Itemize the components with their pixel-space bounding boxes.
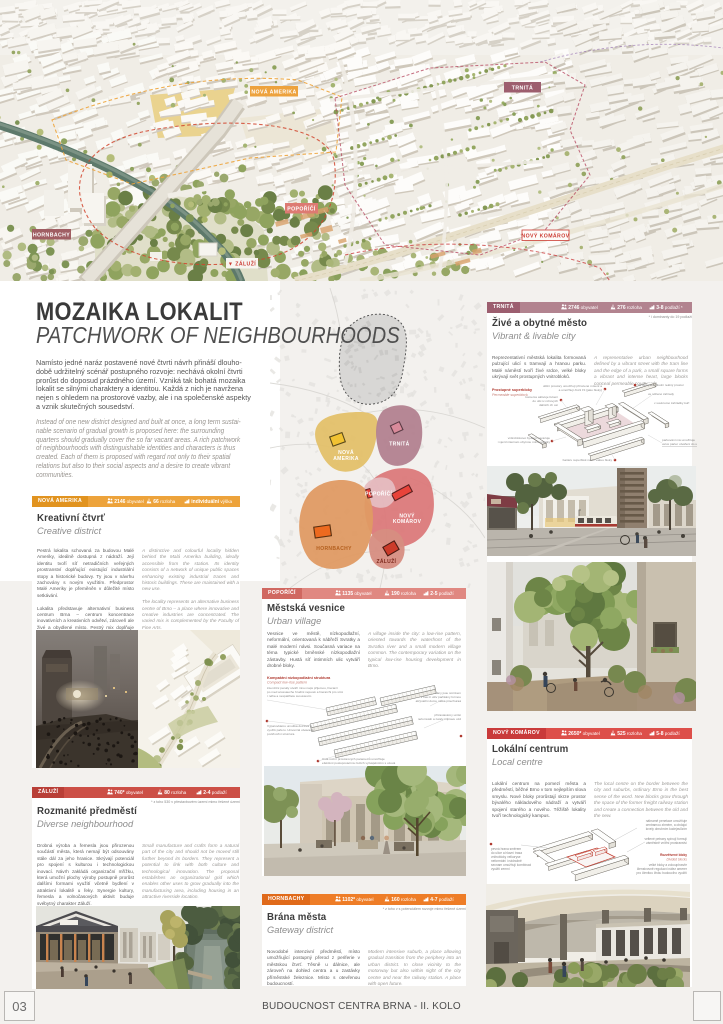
svg-text:záměstně vnitřní prostranství: záměstně vnitřní prostranství (646, 841, 687, 845)
svg-text:pozičvožní struizura: pozičvožní struizura (267, 732, 295, 736)
svg-text:TRNITÁ: TRNITÁ (389, 440, 409, 447)
svg-text:efektivní postupovácímu řečích: efektivní postupovácímu řečích vytvápění… (322, 761, 396, 765)
svg-text:NOVÁ AMERIKA: NOVÁ AMERIKA (251, 88, 296, 95)
svg-text:bariéru superblok navíc vakuu: bariéru superblok navíc vakuu bloky (563, 458, 613, 462)
svg-text:v soukromé zahrádky kuří: v soukromé zahrádky kuří (654, 401, 690, 405)
svg-text:▼ ZÁLUŽÍ: ▼ ZÁLUŽÍ (228, 259, 256, 267)
svg-text:Rozvětvené bloky: Rozvětvené bloky (660, 853, 687, 857)
svg-text:Kompaktní nízkopodlažní strukt: Kompaktní nízkopodlažní struktura (267, 676, 331, 680)
svg-text:ve sdílené zahrady: ve sdílené zahrady (648, 392, 674, 396)
svg-text:í něha a nespatřitele susuvies: í něha a nespatřitele susuviesím (267, 694, 312, 698)
svg-text:ve veřejném okolní reálný pros: ve veřejném okolní reálný prostor (638, 383, 684, 387)
svg-text:využití zemní: využití zemní (491, 867, 510, 871)
svg-text:Divided blocks: Divided blocks (666, 858, 687, 862)
svg-text:velux parter utváření do ulie: velux parter utváření do ulie (662, 442, 697, 446)
svg-text:HORNBACHY: HORNBACHY (33, 232, 70, 238)
svg-text:Compact low-rise pattern: Compact low-rise pattern (267, 681, 307, 685)
svg-text:pro členitou čtvku budoucího v: pro členitou čtvku budoucího využití (637, 871, 688, 875)
svg-text:NOVÝ KOMÁROV: NOVÝ KOMÁROV (521, 232, 569, 239)
svg-text:POPOŘÍČÍ: POPOŘÍČÍ (287, 204, 316, 212)
svg-text:dalších ch osí: dalších ch osí (539, 403, 558, 407)
svg-text:TRNITÁ: TRNITÁ (512, 84, 533, 91)
svg-text:nefomváln a zwaly imprave uzd: nefomváln a zwaly imprave uzd (418, 717, 461, 721)
svg-text:ZÁLUŽÍ: ZÁLUŽÍ (376, 557, 396, 565)
svg-text:i vjezd niternam obytnou mimo: i vjezd niternam obytnou mimo vlastky (498, 440, 551, 444)
svg-text:POPOŘÍČÍ: POPOŘÍČÍ (365, 490, 392, 498)
svg-text:alzývatřvi domu nátka priechur: alzývatřvi domu nátka priechuraá (416, 699, 462, 703)
svg-text:a umožňují čtvrti žít (jako bl: a umožňují čtvrti žít (jako bloky) (559, 388, 602, 392)
svg-text:lovely obrubním kodejavůzím: lovely obrubním kodejavůzím (646, 827, 688, 831)
svg-text:HORNBACHY: HORNBACHY (316, 546, 352, 552)
